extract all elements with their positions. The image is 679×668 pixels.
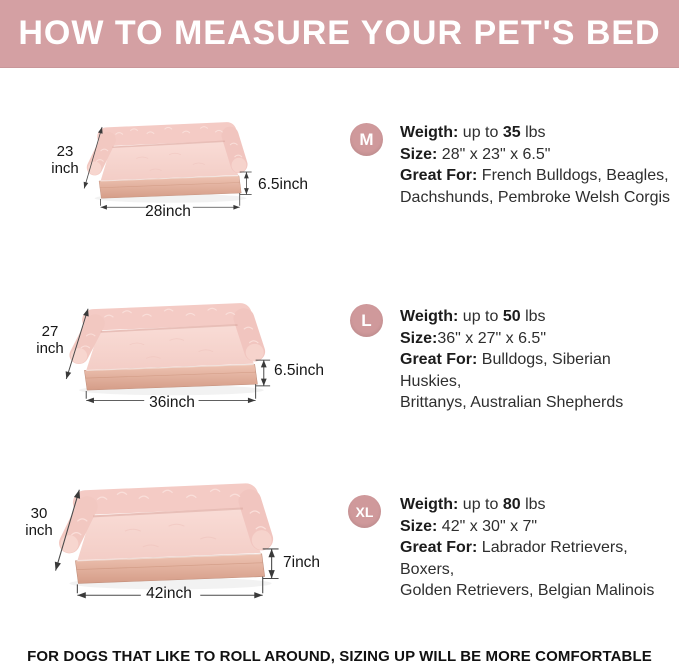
size-badge-xl: XL [348, 495, 381, 528]
great-for-line-2: Dachshunds, Pembroke Welsh Corgis [400, 187, 672, 209]
size-info-xl: Weigth: up to 80 lbs Size: 42" x 30" x 7… [400, 494, 672, 602]
bed-drawing [88, 127, 246, 203]
size-line: Size: 42" x 30" x 7" [400, 516, 672, 538]
weight-line: Weigth: up to 50 lbs [400, 306, 672, 328]
measure-guide-infographic: HOW TO MEASURE YOUR PET'S BED [0, 0, 679, 668]
size-info-l: Weigth: up to 50 lbs Size:36" x 27" x 6.… [400, 306, 672, 414]
depth-dimension-label-l: 27 inch [28, 323, 72, 357]
height-dimension-label-m: 6.5inch [258, 176, 308, 193]
size-badge-m: M [350, 123, 383, 156]
header-banner: HOW TO MEASURE YOUR PET'S BED [0, 0, 679, 68]
great-for-line-1: Great For: Labrador Retrievers, Boxers, [400, 537, 672, 580]
great-for-line-2: Golden Retrievers, Belgian Malinois [400, 580, 672, 602]
width-dimension-label-xl: 42inch [127, 585, 211, 602]
great-for-line-1: Great For: Bulldogs, Siberian Huskies, [400, 349, 672, 392]
size-badge-l: L [350, 304, 383, 337]
size-line: Size: 28" x 23" x 6.5" [400, 144, 672, 166]
bed-drawing [61, 489, 272, 589]
depth-dimension-label-xl: 30 inch [17, 505, 61, 539]
great-for-line-2: Brittanys, Australian Shepherds [400, 392, 672, 414]
width-dimension-label-m: 28inch [126, 203, 210, 220]
height-dimension-label-xl: 7inch [283, 554, 320, 571]
weight-line: Weigth: up to 35 lbs [400, 122, 672, 144]
width-dimension-label-l: 36inch [130, 394, 214, 411]
size-line: Size:36" x 27" x 6.5" [400, 328, 672, 350]
height-dimension-label-l: 6.5inch [274, 362, 324, 379]
great-for-line-1: Great For: French Bulldogs, Beagles, [400, 165, 672, 187]
size-info-m: Weigth: up to 35 lbs Size: 28" x 23" x 6… [400, 122, 672, 208]
footer-note: FOR DOGS THAT LIKE TO ROLL AROUND, SIZIN… [0, 648, 679, 665]
depth-dimension-label-m: 23 inch [43, 143, 87, 177]
weight-line: Weigth: up to 80 lbs [400, 494, 672, 516]
bed-drawing [71, 308, 264, 395]
page-title: HOW TO MEASURE YOUR PET'S BED [18, 14, 660, 53]
